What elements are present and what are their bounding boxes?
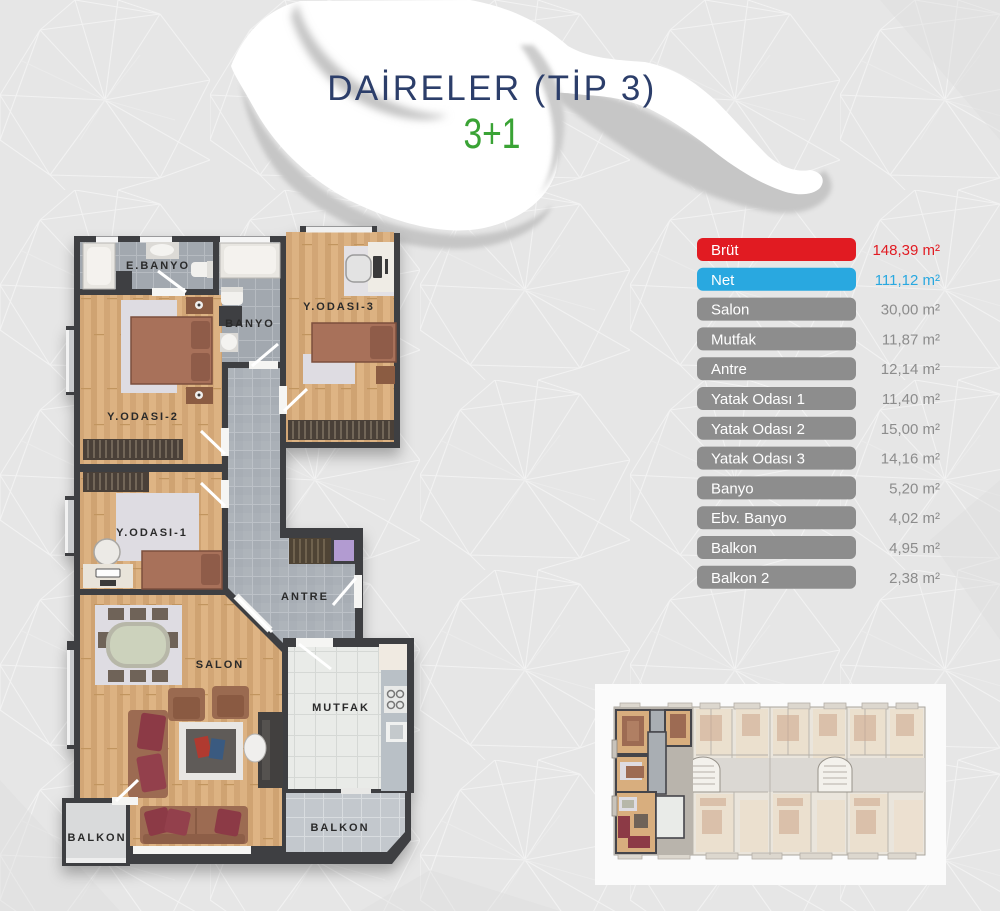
svg-text:SALON: SALON xyxy=(196,659,245,671)
svg-text:111,12 m²: 111,12 m² xyxy=(875,272,940,289)
svg-text:11,87 m²: 11,87 m² xyxy=(882,331,940,348)
svg-text:Banyo: Banyo xyxy=(711,480,754,497)
svg-text:Ebv. Banyo: Ebv. Banyo xyxy=(711,510,787,527)
svg-text:14,16 m²: 14,16 m² xyxy=(881,451,940,468)
svg-text:30,00 m²: 30,00 m² xyxy=(881,302,940,319)
svg-text:ANTRE: ANTRE xyxy=(281,591,329,603)
svg-text:Balkon: Balkon xyxy=(711,540,757,557)
svg-text:Brüt: Brüt xyxy=(711,242,739,259)
svg-text:Mutfak: Mutfak xyxy=(711,331,757,348)
svg-text:Salon: Salon xyxy=(711,302,749,319)
svg-text:11,40 m²: 11,40 m² xyxy=(882,391,940,408)
svg-text:MUTFAK: MUTFAK xyxy=(312,702,370,714)
svg-text:BALKON: BALKON xyxy=(310,822,369,834)
svg-text:Balkon 2: Balkon 2 xyxy=(711,570,769,587)
svg-text:4,95 m²: 4,95 m² xyxy=(889,540,940,557)
svg-text:12,14 m²: 12,14 m² xyxy=(881,361,940,378)
svg-text:Yatak Odası 1: Yatak Odası 1 xyxy=(711,391,805,408)
svg-text:BALKON: BALKON xyxy=(67,832,126,844)
svg-text:15,00 m²: 15,00 m² xyxy=(881,421,940,438)
svg-text:5,20 m²: 5,20 m² xyxy=(889,480,940,497)
svg-text:Yatak Odası 3: Yatak Odası 3 xyxy=(711,451,805,468)
svg-text:DAİRELER (TİP 3): DAİRELER (TİP 3) xyxy=(327,69,657,108)
svg-text:Antre: Antre xyxy=(711,361,747,378)
svg-text:Net: Net xyxy=(711,272,735,289)
svg-text:Y.ODASI-1: Y.ODASI-1 xyxy=(116,527,188,539)
svg-text:2,38 m²: 2,38 m² xyxy=(889,570,940,587)
svg-text:Yatak Odası 2: Yatak Odası 2 xyxy=(711,421,805,438)
svg-text:Y.ODASI-2: Y.ODASI-2 xyxy=(107,411,179,423)
svg-text:148,39 m²: 148,39 m² xyxy=(872,242,940,259)
svg-text:BANYO: BANYO xyxy=(225,318,275,330)
svg-text:Y.ODASI-3: Y.ODASI-3 xyxy=(303,301,375,313)
svg-text:3+1: 3+1 xyxy=(464,110,521,158)
svg-text:E.BANYO: E.BANYO xyxy=(126,260,190,272)
svg-text:4,02 m²: 4,02 m² xyxy=(889,510,940,527)
